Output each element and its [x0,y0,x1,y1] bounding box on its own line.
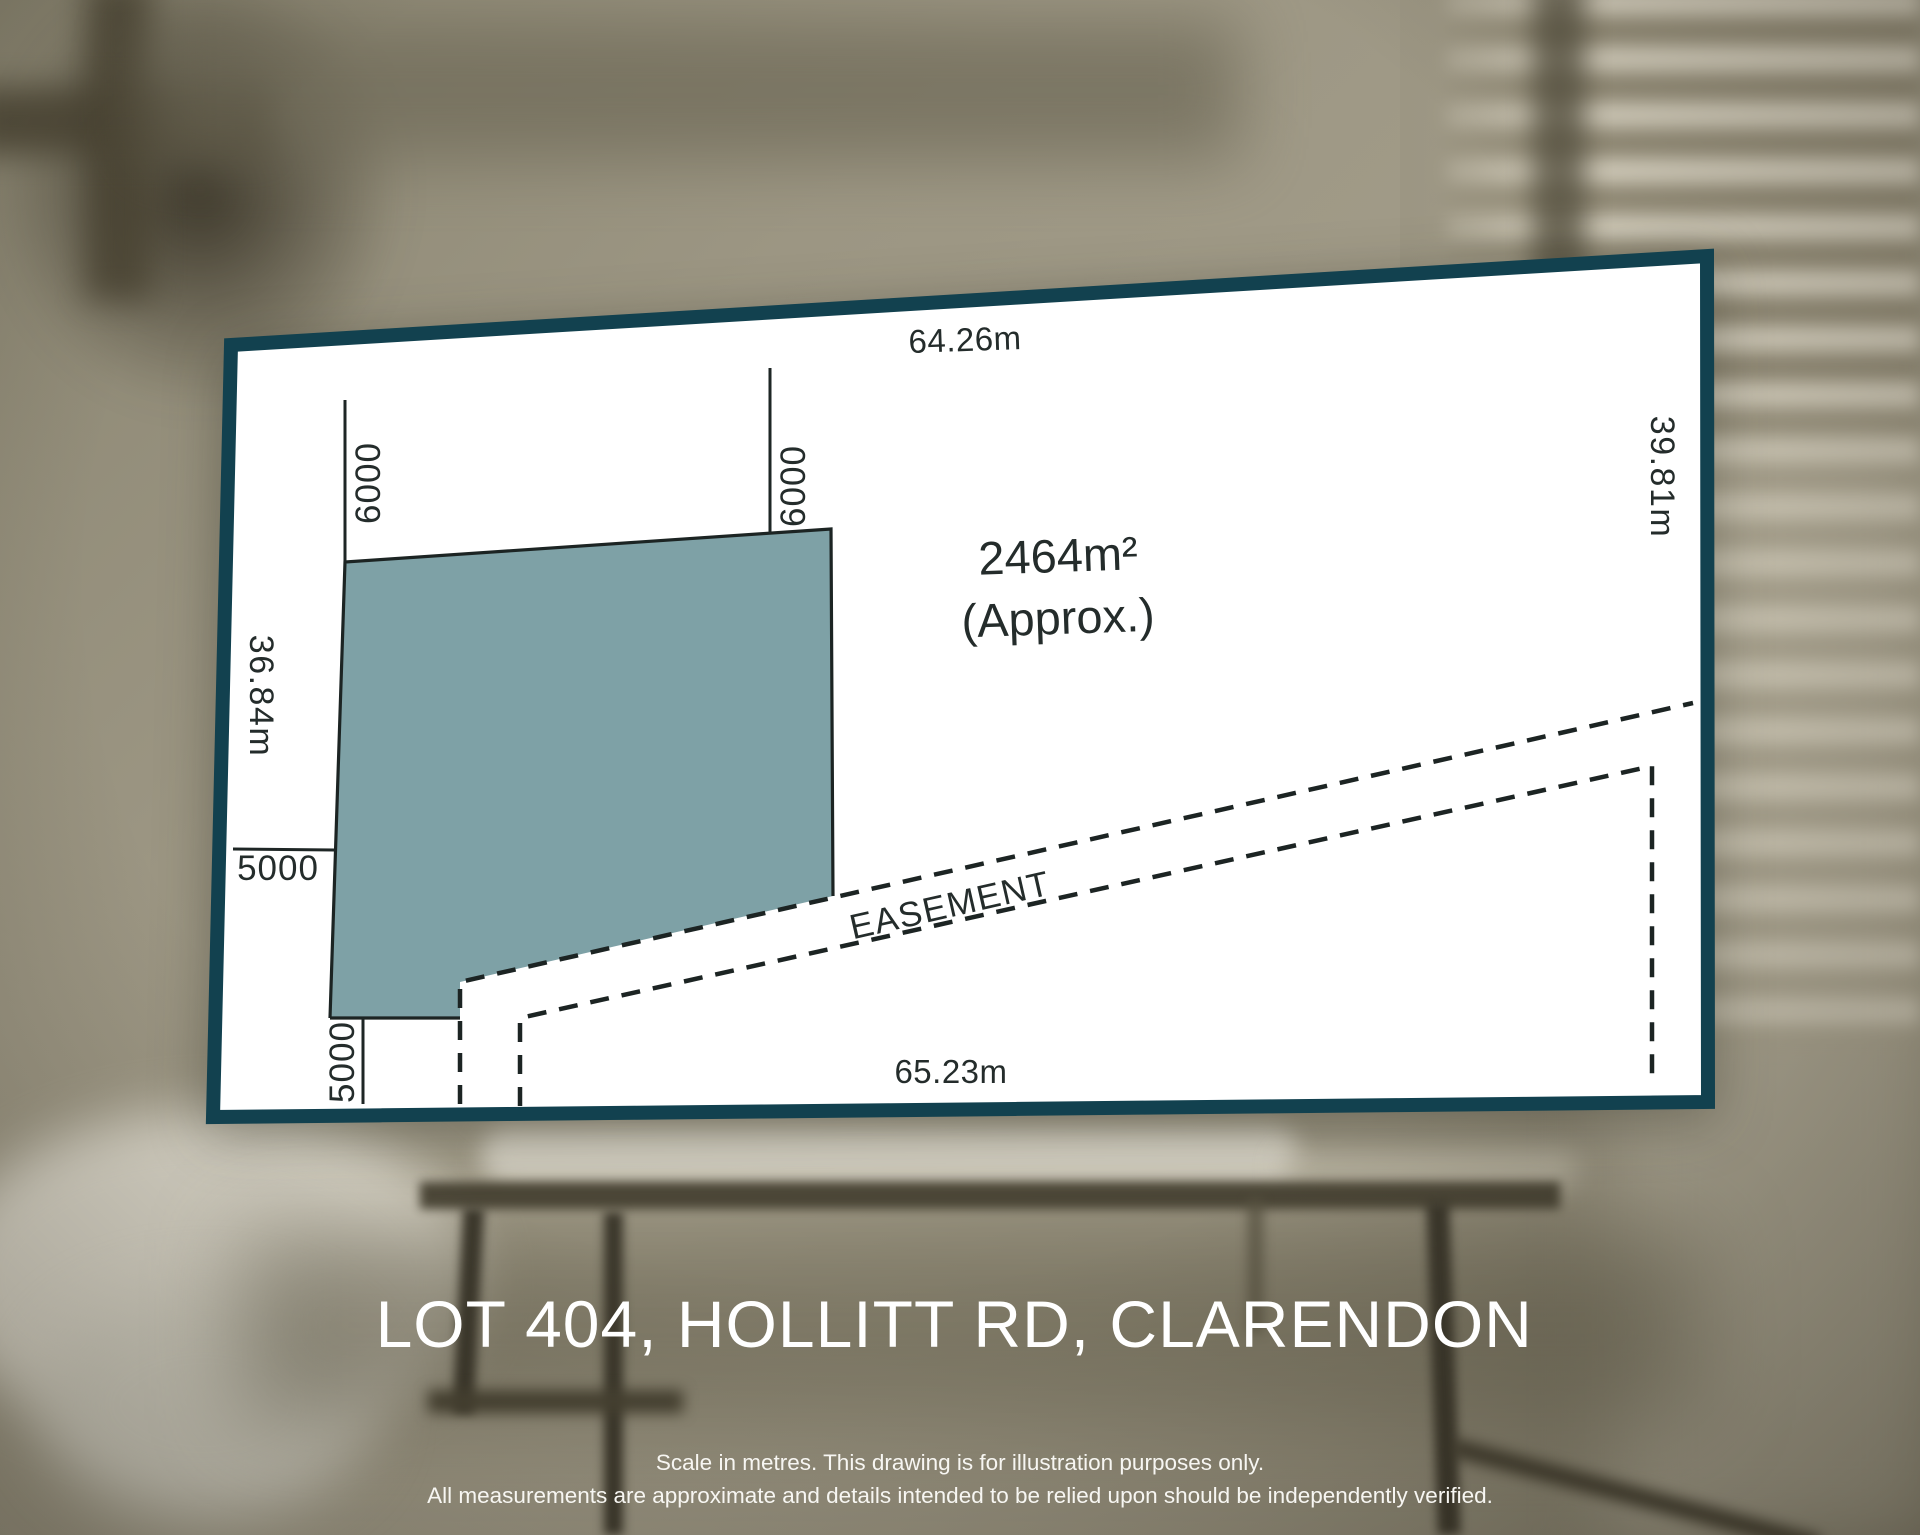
dimension-envelope-left: 6000 [349,442,388,524]
dimension-right-boundary: 39.81m [1643,416,1681,538]
screenshot-canvas: 64.26m 65.23m 36.84m 39.81m 6000 6000 50… [0,0,1920,1535]
dimension-left-boundary: 36.84m [242,635,280,757]
disclaimer-line-1: Scale in metres. This drawing is for ill… [260,1446,1660,1479]
property-address-title: LOT 404, HOLLITT RD, CLARENDON [376,1286,1533,1362]
dimension-envelope-right: 6000 [774,445,813,527]
dimension-bottom-setback: 5000 [323,1021,362,1103]
lot-area-value: 2464m² [977,526,1138,585]
disclaimer-line-2: All measurements are approximate and det… [260,1479,1660,1512]
disclaimer-text: Scale in metres. This drawing is for ill… [260,1446,1660,1512]
lot-area-qualifier: (Approx.) [960,588,1155,648]
dimension-left-setback: 5000 [237,849,319,888]
dimension-bottom-boundary: 65.23m [894,1053,1007,1090]
dimension-top-boundary: 64.26m [908,319,1022,360]
